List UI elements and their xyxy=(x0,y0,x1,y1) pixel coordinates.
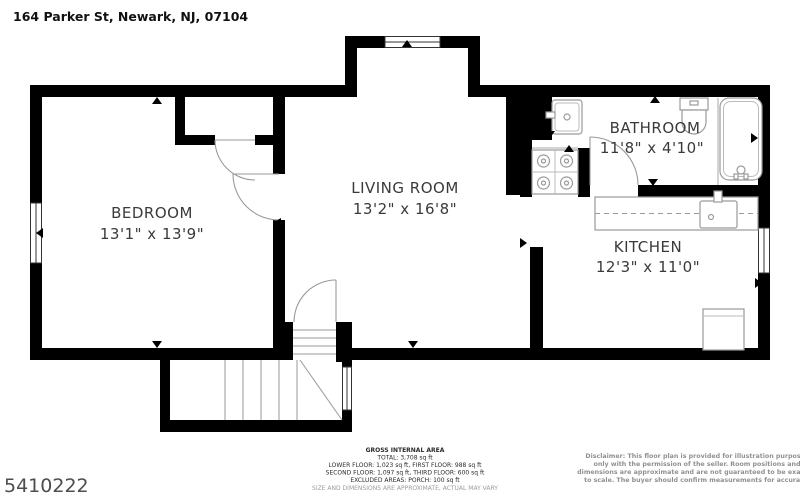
disclaimer-line-3: dimensions are approximate and are not g… xyxy=(577,469,800,476)
bathroom-dims: 11'8" x 4'10" xyxy=(600,139,704,157)
bedroom-door xyxy=(233,174,279,220)
disclaimer-line-2: only with the permission of the seller. … xyxy=(594,461,800,468)
kitchen-label: KITCHEN xyxy=(614,238,683,256)
area-floors-2: SECOND FLOOR: 1,097 sq ft, THIRD FLOOR: … xyxy=(326,470,485,477)
listing-id: 5410222 xyxy=(4,475,89,497)
area-floors-1: LOWER FLOOR: 1,023 sq ft, FIRST FLOOR: 9… xyxy=(329,462,483,469)
kitchen-dims: 12'3" x 11'0" xyxy=(596,258,700,276)
area-summary: GROSS INTERNAL AREA TOTAL: 3,708 sq ft L… xyxy=(312,447,498,492)
disclaimer: Disclaimer: This floor plan is provided … xyxy=(577,453,800,484)
living-room-label: LIVING ROOM xyxy=(351,179,459,197)
stove xyxy=(532,150,578,194)
living-room-dims: 13'2" x 16'8" xyxy=(353,200,457,218)
stair-treads xyxy=(225,360,342,420)
bedroom-label: BEDROOM xyxy=(111,204,193,222)
refrigerator xyxy=(703,309,744,350)
bathroom-sink xyxy=(546,100,582,134)
area-total: TOTAL: 3,708 sq ft xyxy=(376,455,433,462)
area-note: SIZE AND DIMENSIONS ARE APPROXIMATE, ACT… xyxy=(312,485,498,492)
stairwell-window xyxy=(343,367,352,410)
disclaimer-line-1: Disclaimer: This floor plan is provided … xyxy=(585,453,800,460)
kitchen-counter xyxy=(595,191,758,230)
living-room-window xyxy=(385,37,440,48)
bedroom-dims: 13'1" x 13'9" xyxy=(100,225,204,243)
area-excluded: EXCLUDED AREAS: PORCH: 100 sq ft xyxy=(350,477,460,484)
floor-plan: 164 Parker St, Newark, NJ, 07104 BEDROOM… xyxy=(0,0,800,499)
landing-steps xyxy=(293,330,336,354)
stairs-door xyxy=(294,280,336,322)
disclaimer-line-4: to scale. The buyer should confirm measu… xyxy=(584,477,800,484)
address: 164 Parker St, Newark, NJ, 07104 xyxy=(13,9,248,24)
area-title: GROSS INTERNAL AREA xyxy=(366,447,445,454)
kitchen-window xyxy=(759,228,770,273)
bathroom-label: BATHROOM xyxy=(610,119,701,137)
